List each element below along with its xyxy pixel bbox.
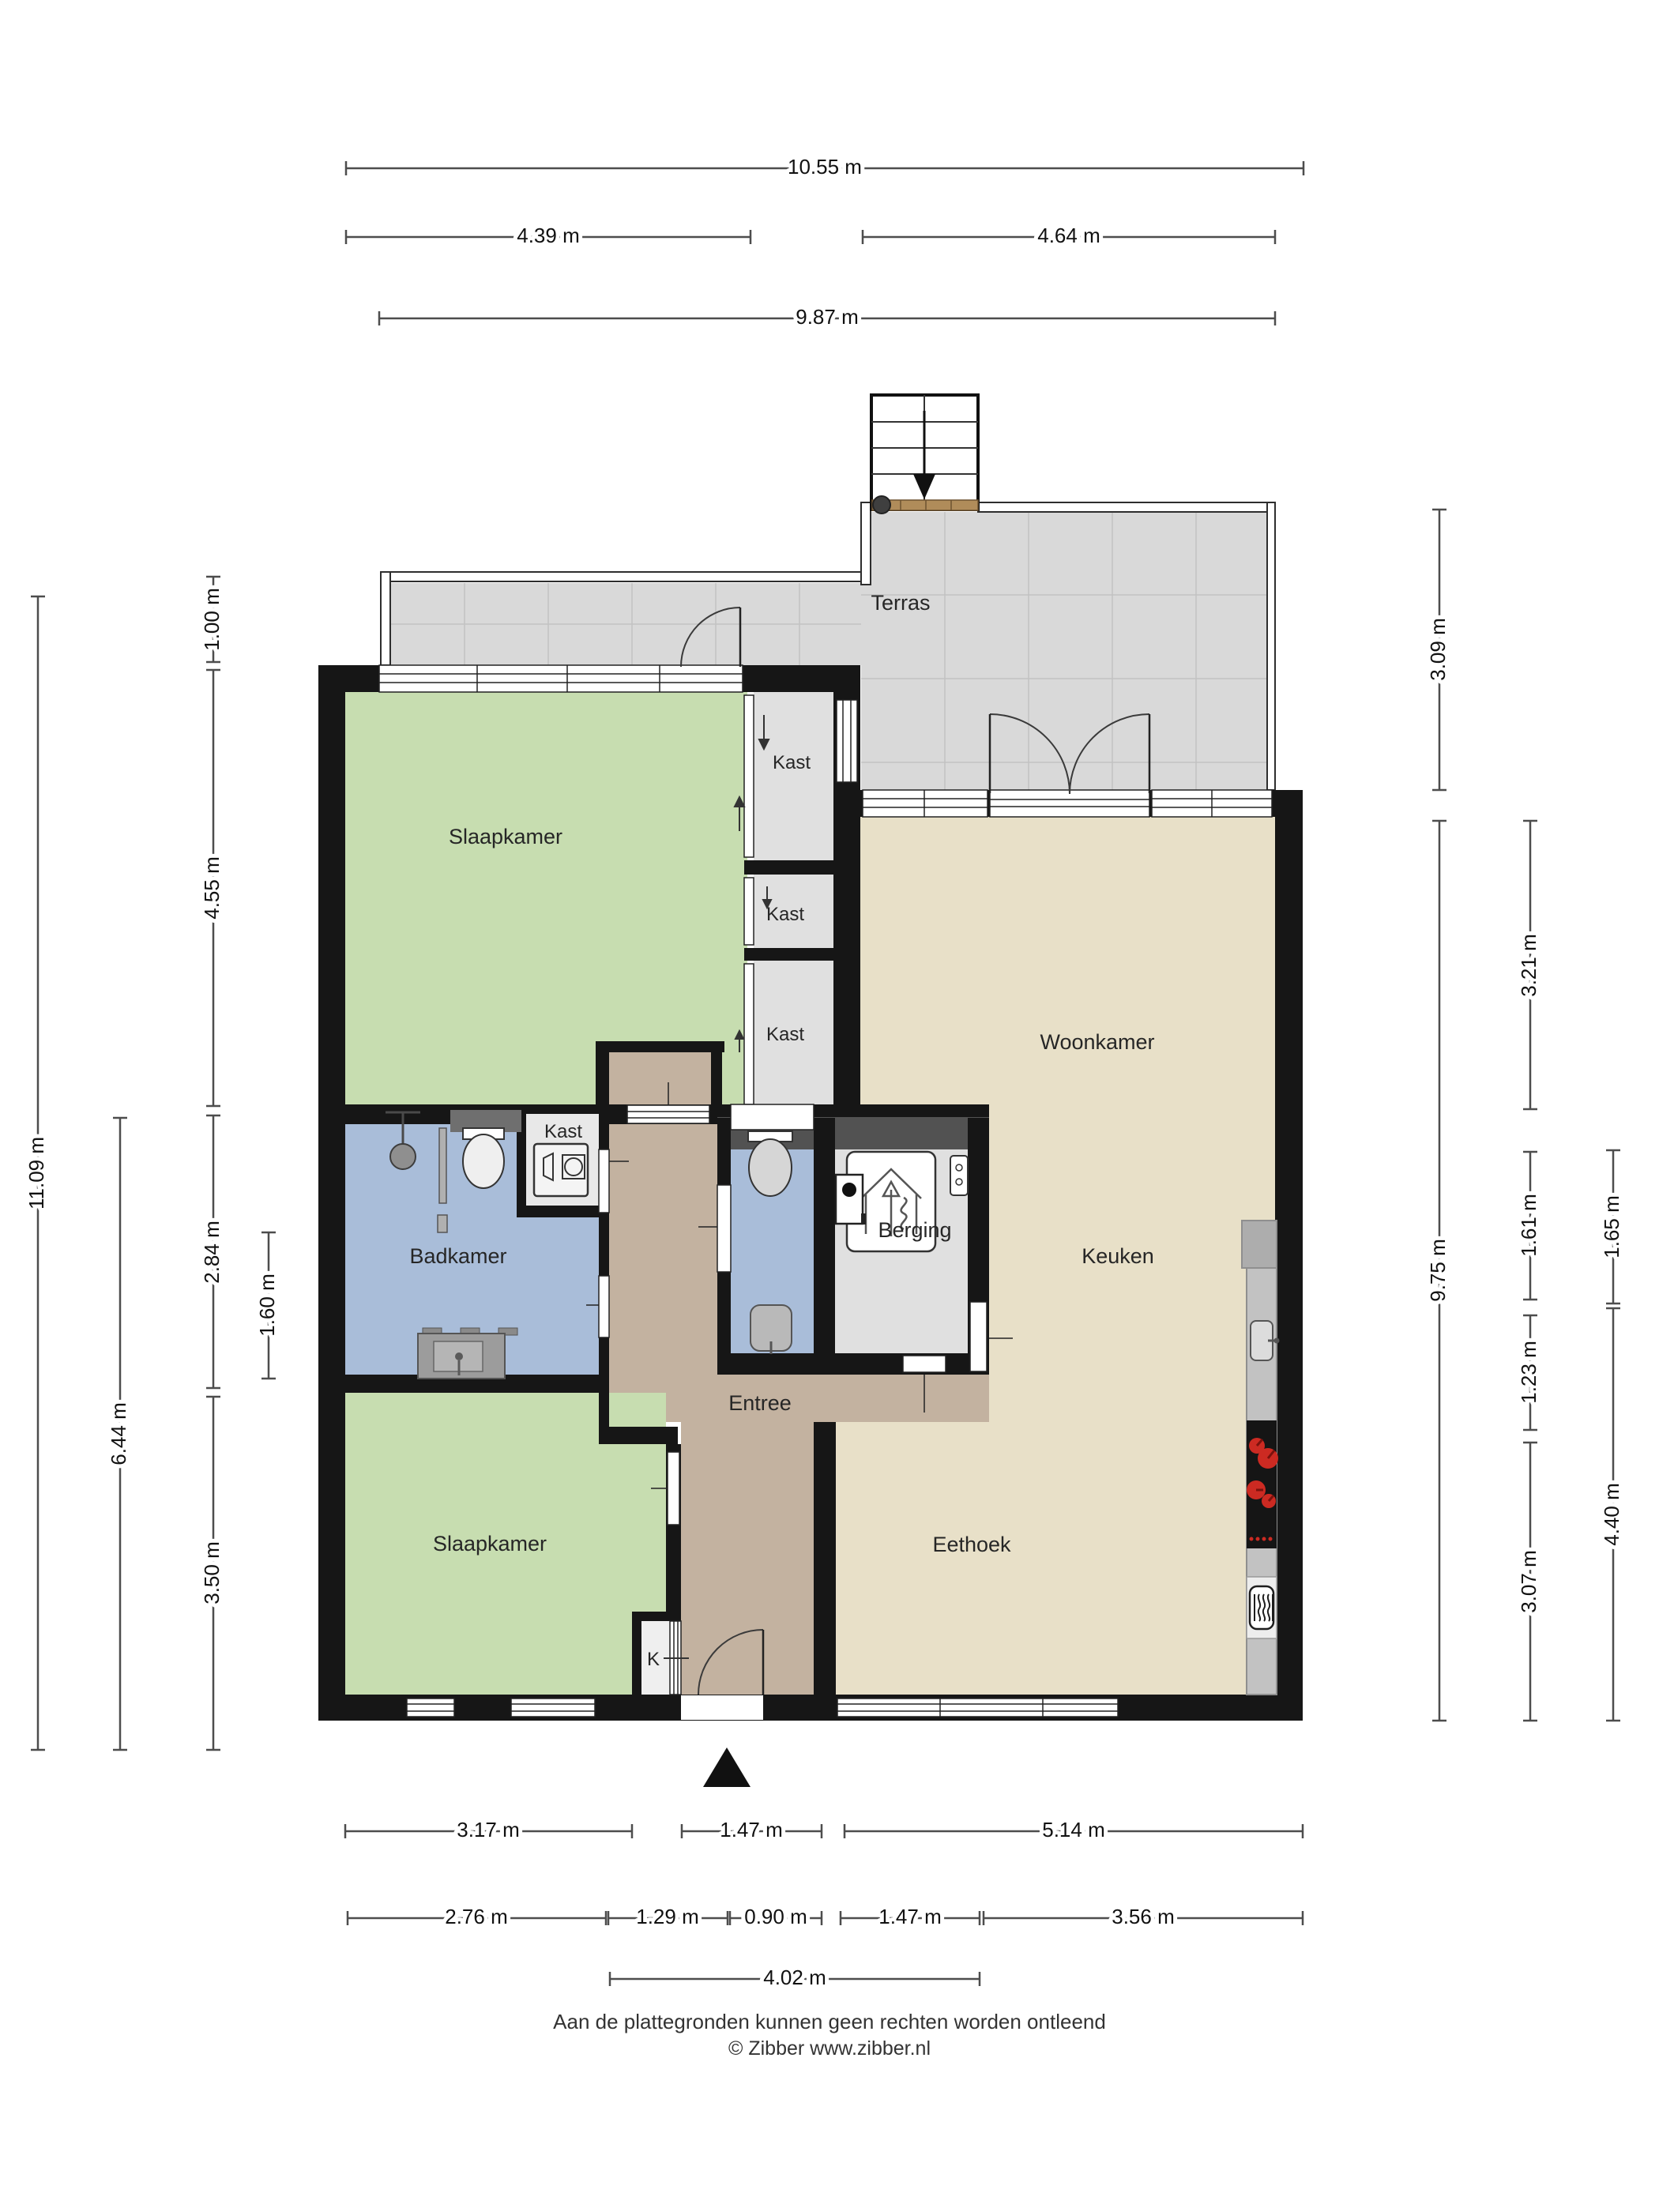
- floor-plan-page: Terras Slaapkamer Kast Kast Kast Woonkam…: [0, 0, 1659, 2212]
- microwave-icon: [1247, 1577, 1277, 1638]
- svg-text:6.44 m: 6.44 m: [107, 1402, 130, 1465]
- dim-bottom-5-14: 5.14 m: [845, 1818, 1303, 1841]
- room-label-woonkamer: Woonkamer: [1040, 1030, 1154, 1054]
- dim-right-3-21: 3.21 m: [1517, 821, 1540, 1109]
- room-label-keuken: Keuken: [1082, 1244, 1154, 1268]
- room-label-slaapkamer-2: Slaapkamer: [433, 1532, 547, 1556]
- svg-text:4.40 m: 4.40 m: [1600, 1483, 1623, 1546]
- dim-bottom-3-56: 3.56 m: [984, 1905, 1303, 1928]
- hand-basin-icon: [750, 1305, 792, 1354]
- window-woonkamer-left: [863, 790, 987, 817]
- room-entree-floor-lower: [681, 1422, 814, 1695]
- terrace-wall-edge: [861, 502, 871, 585]
- svg-text:1.60 m: 1.60 m: [255, 1273, 279, 1337]
- window-slaapkamer-2-b: [511, 1698, 595, 1717]
- svg-text:9.87 m: 9.87 m: [796, 305, 859, 329]
- svg-text:4.39 m: 4.39 m: [517, 224, 580, 247]
- dim-left-6-44: 6.44 m: [107, 1118, 130, 1750]
- toilet-icon: [748, 1131, 792, 1196]
- svg-text:1.65 m: 1.65 m: [1600, 1195, 1623, 1258]
- dim-left-1-00: 1.00 m: [200, 577, 224, 662]
- svg-text:2.84 m: 2.84 m: [200, 1221, 224, 1284]
- svg-text:1.61 m: 1.61 m: [1517, 1194, 1540, 1257]
- dim-top-right: 4.64 m: [863, 224, 1275, 247]
- svg-text:1.23 m: 1.23 m: [1517, 1341, 1540, 1404]
- dim-right-1-65: 1.65 m: [1600, 1150, 1623, 1303]
- north-arrow-icon: [703, 1747, 750, 1787]
- window-woonkamer-right: [1152, 790, 1272, 817]
- dim-bottom-1-47a: 1.47 m: [682, 1818, 822, 1841]
- stairs-icon: [871, 395, 978, 513]
- terrace-wall-left: [381, 572, 390, 665]
- dim-bottom-1-29: 1.29 m: [608, 1905, 728, 1928]
- svg-text:4.64 m: 4.64 m: [1037, 224, 1100, 247]
- dim-left-2-84: 2.84 m: [200, 1115, 224, 1388]
- svg-text:1.47 m: 1.47 m: [720, 1818, 783, 1841]
- svg-text:1.00 m: 1.00 m: [200, 588, 224, 651]
- dim-bottom-4-02: 4.02 m: [610, 1966, 980, 1989]
- svg-text:2.76 m: 2.76 m: [445, 1905, 508, 1928]
- cooktop-icon: [1247, 1420, 1278, 1548]
- room-entree-floor-upper: [609, 1052, 711, 1104]
- room-label-berging: Berging: [878, 1218, 951, 1242]
- dim-right-1-23: 1.23 m: [1517, 1315, 1540, 1430]
- boiler-icon: [836, 1175, 866, 1224]
- room-label-badkamer: Badkamer: [409, 1244, 506, 1268]
- room-eethoek-floor: [836, 1422, 1275, 1695]
- radiator-icon: [438, 1128, 447, 1232]
- room-label-k-closet: K: [647, 1649, 660, 1670]
- svg-text:3.21 m: 3.21 m: [1517, 934, 1540, 997]
- footer-credit: © Zibber www.zibber.nl: [728, 2037, 931, 2060]
- window-slaapkamer-2-a: [407, 1698, 454, 1717]
- room-label-slaapkamer-1: Slaapkamer: [449, 825, 562, 848]
- terrace-wall-top-left: [381, 572, 861, 581]
- room-label-eethoek: Eethoek: [932, 1533, 1011, 1556]
- window-eethoek: [837, 1698, 1118, 1717]
- dim-bottom-1-47b: 1.47 m: [841, 1905, 980, 1928]
- dim-bottom-0-90: 0.90 m: [730, 1905, 822, 1928]
- footer-disclaimer: Aan de plattegronden kunnen geen rechten…: [553, 2010, 1106, 2033]
- svg-text:3.50 m: 3.50 m: [200, 1541, 224, 1604]
- window-slaapkamer-1: [379, 665, 743, 692]
- dim-left-4-55: 4.55 m: [200, 670, 224, 1106]
- intercom-icon: [950, 1156, 968, 1195]
- room-woonkamer-floor: [860, 817, 1275, 1109]
- dim-bottom-3-17: 3.17 m: [345, 1818, 632, 1841]
- svg-text:10.55 m: 10.55 m: [788, 155, 862, 179]
- washbasin-icon: [418, 1328, 517, 1379]
- svg-text:3.17 m: 3.17 m: [457, 1818, 520, 1841]
- dim-right-4-40: 4.40 m: [1600, 1308, 1623, 1721]
- door-kast-terras: [837, 700, 857, 782]
- room-entree-floor-strip: [609, 1375, 989, 1422]
- kast-sliding-doors: [744, 695, 754, 1104]
- dim-right-3-07: 3.07 m: [1517, 1443, 1540, 1721]
- dim-right-3-09: 3.09 m: [1426, 510, 1450, 790]
- dim-left-total: 11.09 m: [24, 596, 48, 1750]
- room-label-kast-1: Kast: [773, 752, 811, 773]
- room-label-entree: Entree: [728, 1391, 792, 1415]
- room-label-terras: Terras: [871, 591, 930, 615]
- toilet-lintel: [731, 1104, 814, 1130]
- svg-text:0.90 m: 0.90 m: [744, 1905, 807, 1928]
- terrace-wall-right: [1267, 502, 1275, 790]
- dim-top-left: 4.39 m: [346, 224, 750, 247]
- svg-text:1.47 m: 1.47 m: [878, 1905, 942, 1928]
- dim-top-total: 10.55 m: [346, 155, 1303, 179]
- kitchen-counter: [1242, 1221, 1280, 1695]
- dim-left-1-60: 1.60 m: [255, 1232, 279, 1379]
- washing-machine-icon: [534, 1144, 588, 1196]
- svg-text:5.14 m: 5.14 m: [1042, 1818, 1105, 1841]
- floor-plan-drawing: Terras Slaapkamer Kast Kast Kast Woonkam…: [0, 0, 1659, 2212]
- svg-text:1.29 m: 1.29 m: [636, 1905, 699, 1928]
- svg-text:4.55 m: 4.55 m: [200, 856, 224, 920]
- svg-text:3.56 m: 3.56 m: [1112, 1905, 1175, 1928]
- room-label-kast-2: Kast: [766, 904, 804, 925]
- dim-left-3-50: 3.50 m: [200, 1397, 224, 1750]
- svg-text:9.75 m: 9.75 m: [1426, 1239, 1450, 1302]
- room-label-kast-3: Kast: [766, 1024, 804, 1045]
- terrace-wall-top-right: [978, 502, 1275, 512]
- dim-bottom-2-76: 2.76 m: [348, 1905, 606, 1928]
- svg-text:11.09 m: 11.09 m: [24, 1137, 48, 1209]
- svg-text:3.09 m: 3.09 m: [1426, 618, 1450, 681]
- room-label-kast-badkamer: Kast: [544, 1121, 582, 1142]
- svg-text:4.02 m: 4.02 m: [763, 1966, 826, 1989]
- dim-right-1-61: 1.61 m: [1517, 1152, 1540, 1300]
- dim-right-9-75: 9.75 m: [1426, 821, 1450, 1721]
- svg-text:3.07 m: 3.07 m: [1517, 1550, 1540, 1613]
- dim-top-terras: 9.87 m: [379, 305, 1275, 329]
